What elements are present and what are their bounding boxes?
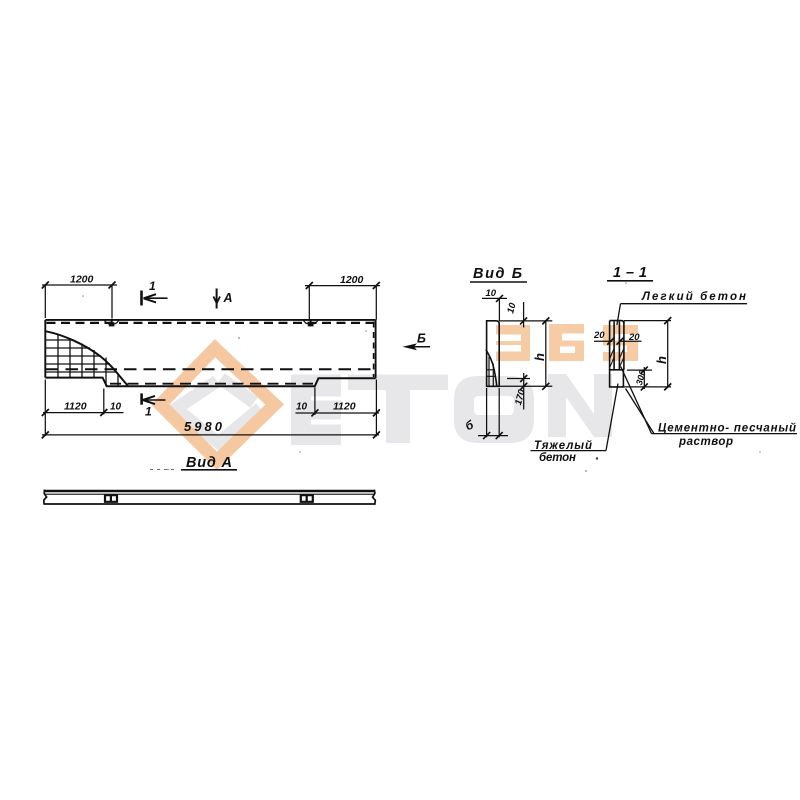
svg-text:h: h [654, 356, 669, 364]
svg-text:10: 10 [486, 288, 497, 299]
svg-text:20: 20 [628, 332, 640, 343]
svg-text:раствор: раствор [678, 436, 733, 448]
svg-text:бетон: бетон [539, 452, 576, 464]
svg-text:10: 10 [296, 402, 308, 413]
svg-text:Цементно- песчаный: Цементно- песчаный [658, 423, 796, 435]
svg-text:А: А [223, 291, 233, 305]
svg-text:1120: 1120 [333, 401, 356, 413]
svg-text:Вид Б: Вид Б [473, 266, 522, 282]
svg-text:Вид А: Вид А [186, 455, 232, 471]
svg-text:1120: 1120 [64, 401, 87, 413]
svg-text:1: 1 [149, 279, 156, 293]
svg-text:1200: 1200 [70, 274, 94, 286]
svg-text:1200: 1200 [340, 274, 364, 286]
svg-text:20: 20 [593, 330, 605, 341]
svg-text:Б: Б [417, 332, 426, 346]
svg-text:1: 1 [145, 405, 152, 419]
svg-text:300: 300 [634, 369, 648, 386]
svg-text:1–1: 1–1 [613, 265, 647, 281]
svg-text:10: 10 [505, 301, 519, 315]
svg-text:Легкий бетон: Легкий бетон [641, 291, 746, 303]
svg-text:h: h [532, 353, 547, 361]
svg-text:10: 10 [110, 402, 122, 413]
